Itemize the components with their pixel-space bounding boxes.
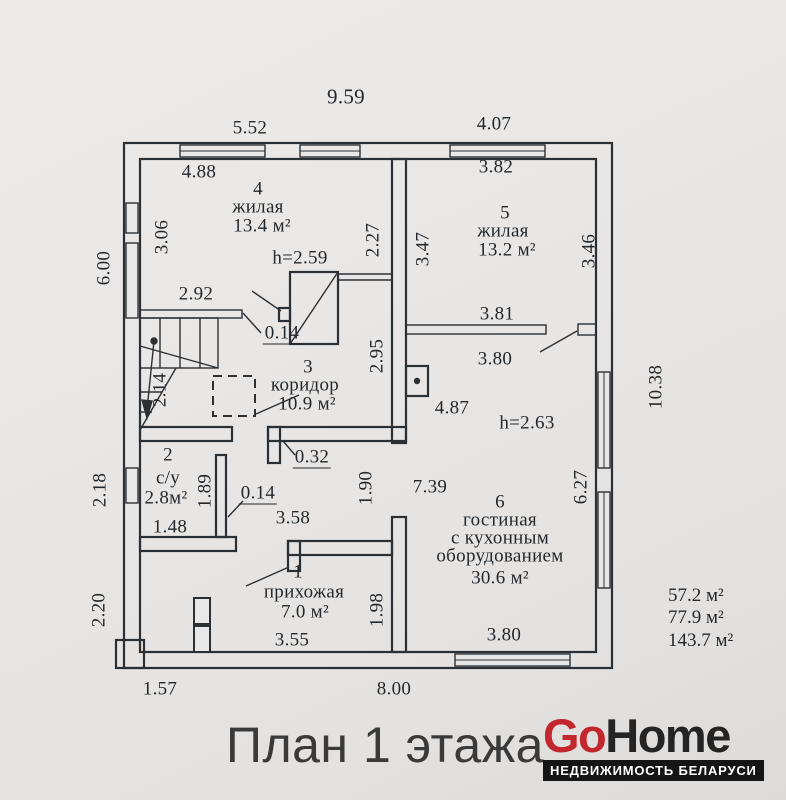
area-totals: 57.2 м² 77.9 м² 143.7 м² [668, 585, 733, 652]
dim-room3-bottom: 4.87 [435, 399, 469, 418]
dim-room3-right: 2.95 [368, 339, 387, 373]
dim-top-left-span: 5.52 [233, 119, 267, 138]
dim-top-total: 9.59 [327, 87, 365, 108]
dim-su-bottom: 1.48 [153, 518, 187, 537]
dim-room6-right: 6.27 [572, 470, 591, 504]
entrance-door [194, 598, 210, 652]
room3-area: 10.9 м² [278, 395, 336, 414]
room1-name: прихожая [264, 583, 344, 602]
dim-room4-left: 3.06 [153, 220, 172, 254]
room1-area: 7.0 м² [281, 603, 329, 622]
dim-shelf-thickness: 0.14 [263, 324, 301, 345]
room2-number: 2 [163, 446, 173, 465]
dim-partition-top: 3.81 [480, 305, 514, 324]
dim-top-right-span: 4.07 [477, 115, 511, 134]
dim-right-total: 10.38 [647, 365, 666, 409]
dim-room4-right: 2.27 [364, 223, 383, 257]
dim-room6-width: 7.39 [413, 478, 447, 497]
room3-name: коридор [271, 376, 339, 395]
room5-name: жилая [477, 222, 528, 241]
dim-left-middle: 2.18 [91, 473, 110, 507]
dim-hall-right: 1.90 [357, 471, 376, 505]
dim-bottom-left: 1.57 [143, 680, 177, 699]
dim-su-wall: 0.14 [239, 484, 277, 505]
total-area: 143.7 м² [668, 630, 733, 652]
vent-shaft [406, 366, 428, 396]
staircase [140, 310, 242, 430]
room2-name: с/у [156, 469, 180, 488]
usable-area-total: 77.9 м² [668, 607, 733, 629]
gohome-logo: GoHome НЕДВИЖИМОСТЬ БЕЛАРУСИ [543, 712, 748, 781]
room6-area: 30.6 м² [471, 569, 529, 588]
room4-name: жилая [232, 198, 283, 217]
dim-room5-top: 3.82 [479, 158, 513, 177]
dim-room1-bottom: 3.55 [275, 631, 309, 650]
dim-stairs-shelf: 2.92 [179, 285, 213, 304]
room6-height: h=2.63 [499, 414, 554, 433]
floor-plan-photo: 9.59 5.52 4.07 6.00 2.18 2.20 10.38 1.57… [0, 0, 786, 800]
logo-go-text: Go [543, 709, 605, 762]
living-area-total: 57.2 м² [668, 585, 733, 607]
room4-height: h=2.59 [272, 249, 327, 268]
room5-area: 13.2 м² [478, 241, 536, 260]
dim-room1-right: 1.98 [368, 593, 387, 627]
dim-room5-right: 3.46 [580, 234, 599, 268]
gohome-wordmark: GoHome [543, 712, 748, 759]
dim-left-upper: 6.00 [95, 251, 114, 285]
dim-left-lower: 2.20 [90, 593, 109, 627]
room5-partition [406, 325, 546, 334]
room6-name-3: оборудованием [436, 547, 563, 566]
wall-niche [578, 324, 596, 335]
dim-wall-032: 0.32 [293, 448, 331, 469]
logo-tagline: НЕДВИЖИМОСТЬ БЕЛАРУСИ [543, 760, 764, 781]
stove-details [290, 272, 392, 344]
ceiling-hatch [213, 376, 255, 416]
dim-stairs-height: 2.14 [151, 373, 170, 407]
dim-room5-left: 3.47 [414, 232, 433, 266]
logo-home-text: Home [605, 709, 730, 762]
dim-bottom-total: 8.00 [377, 680, 411, 699]
exterior-walls [124, 143, 612, 668]
room2-area: 2.8м² [145, 489, 188, 508]
dim-room6-bottom: 3.80 [487, 626, 521, 645]
room4-area: 13.4 м² [233, 217, 291, 236]
dim-su-door: 1.89 [196, 474, 215, 508]
dim-partition-bottom: 3.80 [478, 350, 512, 369]
room1-number: 1 [293, 563, 303, 582]
dim-room4-top: 4.88 [182, 163, 216, 182]
dim-hall-top: 3.58 [276, 509, 310, 528]
page-title: План 1 этажа [225, 716, 545, 774]
